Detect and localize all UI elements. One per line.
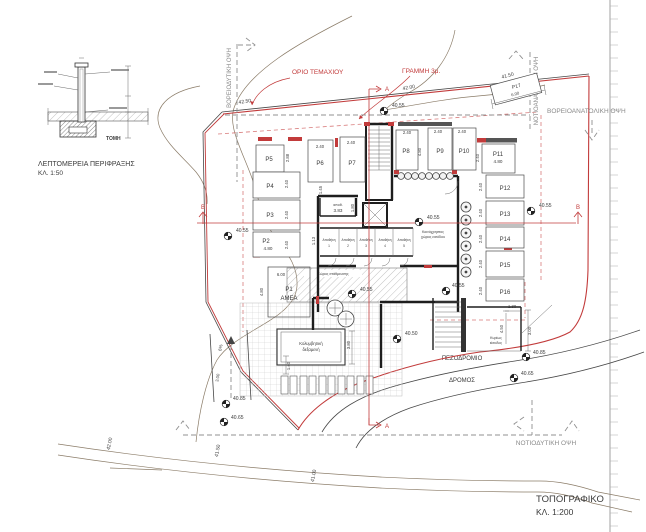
detail-scale: ΚΛ. 1:50: [38, 170, 63, 177]
spot-elevation: 40.85: [533, 350, 546, 356]
main-staircase: [366, 124, 392, 200]
spot-elevation: 40.55: [452, 283, 465, 289]
stall-label-p12: P12: [500, 186, 511, 192]
spot-elevation: 40.85: [233, 396, 246, 402]
contour-label: 41.00: [310, 469, 318, 483]
detail-caption: ΛΕΠΤΟΜΕΡΕΙΑ ΠΕΡΙΦΡΑΞΗΣ: [38, 161, 135, 168]
fence-annotation: [111, 69, 129, 71]
storage-number: 2: [347, 244, 349, 248]
dim: 2.40: [434, 129, 443, 134]
fence-annotation: [109, 107, 127, 109]
pool-label: δεξαμενή: [302, 347, 320, 352]
stall-sub-p1: ΑΜΕΑ: [280, 296, 297, 302]
stall-label-p1: P1: [285, 287, 293, 293]
view-arrow-nw: [238, 38, 255, 52]
drawing-sheet: ΤΟΜΗ ΛΕΠΤΟΜΕΡΕΙΑ ΠΕΡΙΦΡΑΞΗΣ ΚΛ. 1:50 42.…: [0, 0, 646, 532]
parking-stall: [253, 172, 300, 198]
fence-post: [78, 67, 85, 122]
view-arrow-ne: [585, 120, 599, 140]
section-b-label: B: [576, 205, 580, 211]
parking-stall: [253, 232, 300, 257]
spot-elevation: 40.55: [360, 287, 373, 293]
lobby-label: Κοινόχρηστος: [422, 230, 444, 234]
spot-elevation: 40.55: [392, 103, 405, 109]
dim: 2.40: [475, 153, 480, 162]
dim: 4.80: [417, 147, 422, 156]
dim: 1.30: [508, 304, 517, 309]
dim: 4.50: [499, 324, 504, 333]
entry-label: Κυρίως: [490, 336, 502, 340]
fence-detail: ΤΟΜΗ ΛΕΠΤΟΜΕΡΕΙΑ ΠΕΡΙΦΡΑΞΗΣ ΚΛ. 1:50: [38, 58, 148, 177]
stall-label-p3: P3: [266, 213, 274, 219]
dim: 2.88: [285, 153, 290, 162]
dim: 6.00: [277, 272, 286, 277]
dim: 1.45: [318, 185, 323, 194]
sheet-edge-ruler: [610, 0, 618, 532]
fence-section-label: ΤΟΜΗ: [106, 136, 121, 142]
dim: 2.40: [478, 208, 483, 217]
dim: 2.40: [284, 210, 289, 219]
view-arrow-sw: [565, 421, 579, 431]
dim: 3.00: [214, 373, 220, 383]
pilotis-label: Χώρος στάθμευσης: [317, 272, 348, 276]
storage-label: Αποθήκη: [342, 238, 355, 242]
stall-sub-p11: 4.80: [494, 159, 503, 164]
dim: 2.40: [458, 129, 467, 134]
contour-label: 42.00: [402, 84, 416, 92]
storage-label: Αποθήκη: [379, 238, 392, 242]
dim: 1.80: [350, 203, 355, 212]
stall-label-p2: P2: [262, 239, 270, 245]
small-storage-label: αποθ.: [333, 203, 343, 207]
dim: 2.40: [284, 240, 289, 249]
section-a-label: A: [385, 87, 389, 93]
contour-lines: 42.50 42.00 41.50 42.00 41.50 41.00: [58, 16, 640, 512]
dim: 2.40: [478, 182, 483, 191]
stall-label-p4: P4: [266, 184, 274, 190]
site-plan-drawing: ΤΟΜΗ ΛΕΠΤΟΜΕΡΕΙΑ ΠΕΡΙΦΡΑΞΗΣ ΚΛ. 1:50 42.…: [0, 0, 646, 532]
stall-label-p11: P11: [493, 152, 504, 158]
dim: 2.40: [403, 130, 412, 135]
section-b-arrow: [199, 212, 207, 224]
section-a-label: A: [385, 424, 389, 430]
contour-label: 42.50: [238, 98, 251, 106]
spot-elevation: 40.55: [236, 228, 249, 234]
exterior-stairs: [433, 298, 466, 352]
dim: 2.40: [284, 179, 289, 188]
lobby-label: χώρος εισόδου: [421, 235, 445, 239]
dim: 2.40: [478, 234, 483, 243]
spot-elevation: 40.55: [539, 203, 552, 209]
storage-rooms: Αποθήκη Αποθήκη Αποθήκη Αποθήκη Αποθήκη …: [323, 238, 411, 248]
stall-label-p16: P16: [500, 290, 511, 296]
spot-elevation: 40.50: [405, 331, 418, 337]
fence-cap: [75, 63, 88, 67]
stall-label-p8: P8: [402, 149, 410, 155]
small-storage-dim: 3.83: [334, 208, 343, 213]
plot-boundary-label: ΟΡΙΟ ΤΕΜΑΧΙΟΥ: [292, 69, 344, 76]
sheet-title: ΤΟΠΟΓΡΑΦΙΚΟ: [536, 494, 604, 505]
stall-label-p15: P15: [500, 263, 511, 269]
storage-label: Αποθήκη: [398, 238, 411, 242]
title-block: ΤΟΠΟΓΡΑΦΙΚΟ ΚΛ. 1:200: [536, 494, 604, 517]
dim: 1.13: [311, 236, 316, 245]
view-label-nw: ΒΟΡΕΙΟΔΥΤΙΚΗ ΟΨΗ: [227, 48, 233, 108]
stall-label-p9: P9: [436, 149, 444, 155]
fence-ground-band: [48, 112, 148, 121]
stall-sub-p2: 4.80: [264, 246, 273, 251]
stall-label-p5: P5: [265, 157, 273, 163]
dim: 3.80: [346, 340, 351, 349]
stall-label-p6: P6: [316, 161, 324, 167]
sidewalk-label: ΠΕΖΟΔΡΟΜΙΟ: [442, 356, 483, 362]
stall-label-p7: P7: [348, 161, 356, 167]
contour-label: 42.00: [106, 437, 115, 451]
fence-annotation: [44, 71, 57, 73]
section-a-arrow: [369, 86, 381, 92]
storage-number: 3: [365, 244, 367, 248]
spot-elevation: 40.65: [231, 415, 244, 421]
contour-label: 41.50: [214, 444, 222, 458]
fence-annotation: [38, 83, 53, 85]
stall-label-p14: P14: [500, 237, 511, 243]
sheet-scale: ΚΛ. 1:200: [536, 507, 574, 517]
storage-label: Αποθήκη: [323, 238, 336, 242]
dim: 2.40: [347, 140, 356, 145]
view-arrow-se: [509, 51, 523, 59]
pool-label: Κολυμβητική: [299, 341, 323, 346]
setback-label: ΓΡΑΜΜΗ 3μ.: [402, 68, 440, 75]
colonnade-top: [398, 173, 454, 180]
dim: 1.40: [286, 361, 291, 370]
main-entry-court: 1.30 4.50 3.00 Κυρίως είσοδος: [467, 304, 552, 351]
storage-number: 4: [384, 244, 386, 248]
road-label: ΔΡΟΜΟΣ: [449, 378, 475, 384]
view-label-ne: ΒΟΡΕΙΟΑΝΑΤΟΛΙΚΗ ΟΨΗ: [547, 108, 626, 115]
entry-label: είσοδος: [490, 341, 503, 345]
colonnade-right: [461, 202, 471, 277]
stall-label-p13: P13: [500, 212, 511, 218]
stall-label-p10: P10: [459, 149, 470, 155]
dim: 2.40: [478, 286, 483, 295]
dim: 2.40: [316, 144, 325, 149]
section-b-label: B: [201, 205, 205, 211]
spot-elevation: 40.65: [521, 371, 534, 377]
storage-label: Αποθήκη: [360, 238, 373, 242]
view-arrow-sw: [176, 421, 190, 430]
view-arrow-sw: [514, 417, 524, 431]
dim: 3.00: [527, 326, 532, 335]
storage-number: 1: [328, 244, 330, 248]
dim: 2.40: [478, 259, 483, 268]
ramp-slope: 6%: [217, 344, 223, 351]
section-b-arrow: [574, 212, 582, 224]
spot-elevation: 40.55: [427, 215, 440, 221]
parking-stall: [253, 200, 300, 230]
storage-number: 5: [403, 244, 405, 248]
dim: 4.80: [259, 287, 264, 296]
ramp-direction-arrow: [227, 336, 235, 344]
view-label-sw: ΝΟΤΙΟΔΥΤΙΚΗ ΟΨΗ: [516, 440, 577, 447]
